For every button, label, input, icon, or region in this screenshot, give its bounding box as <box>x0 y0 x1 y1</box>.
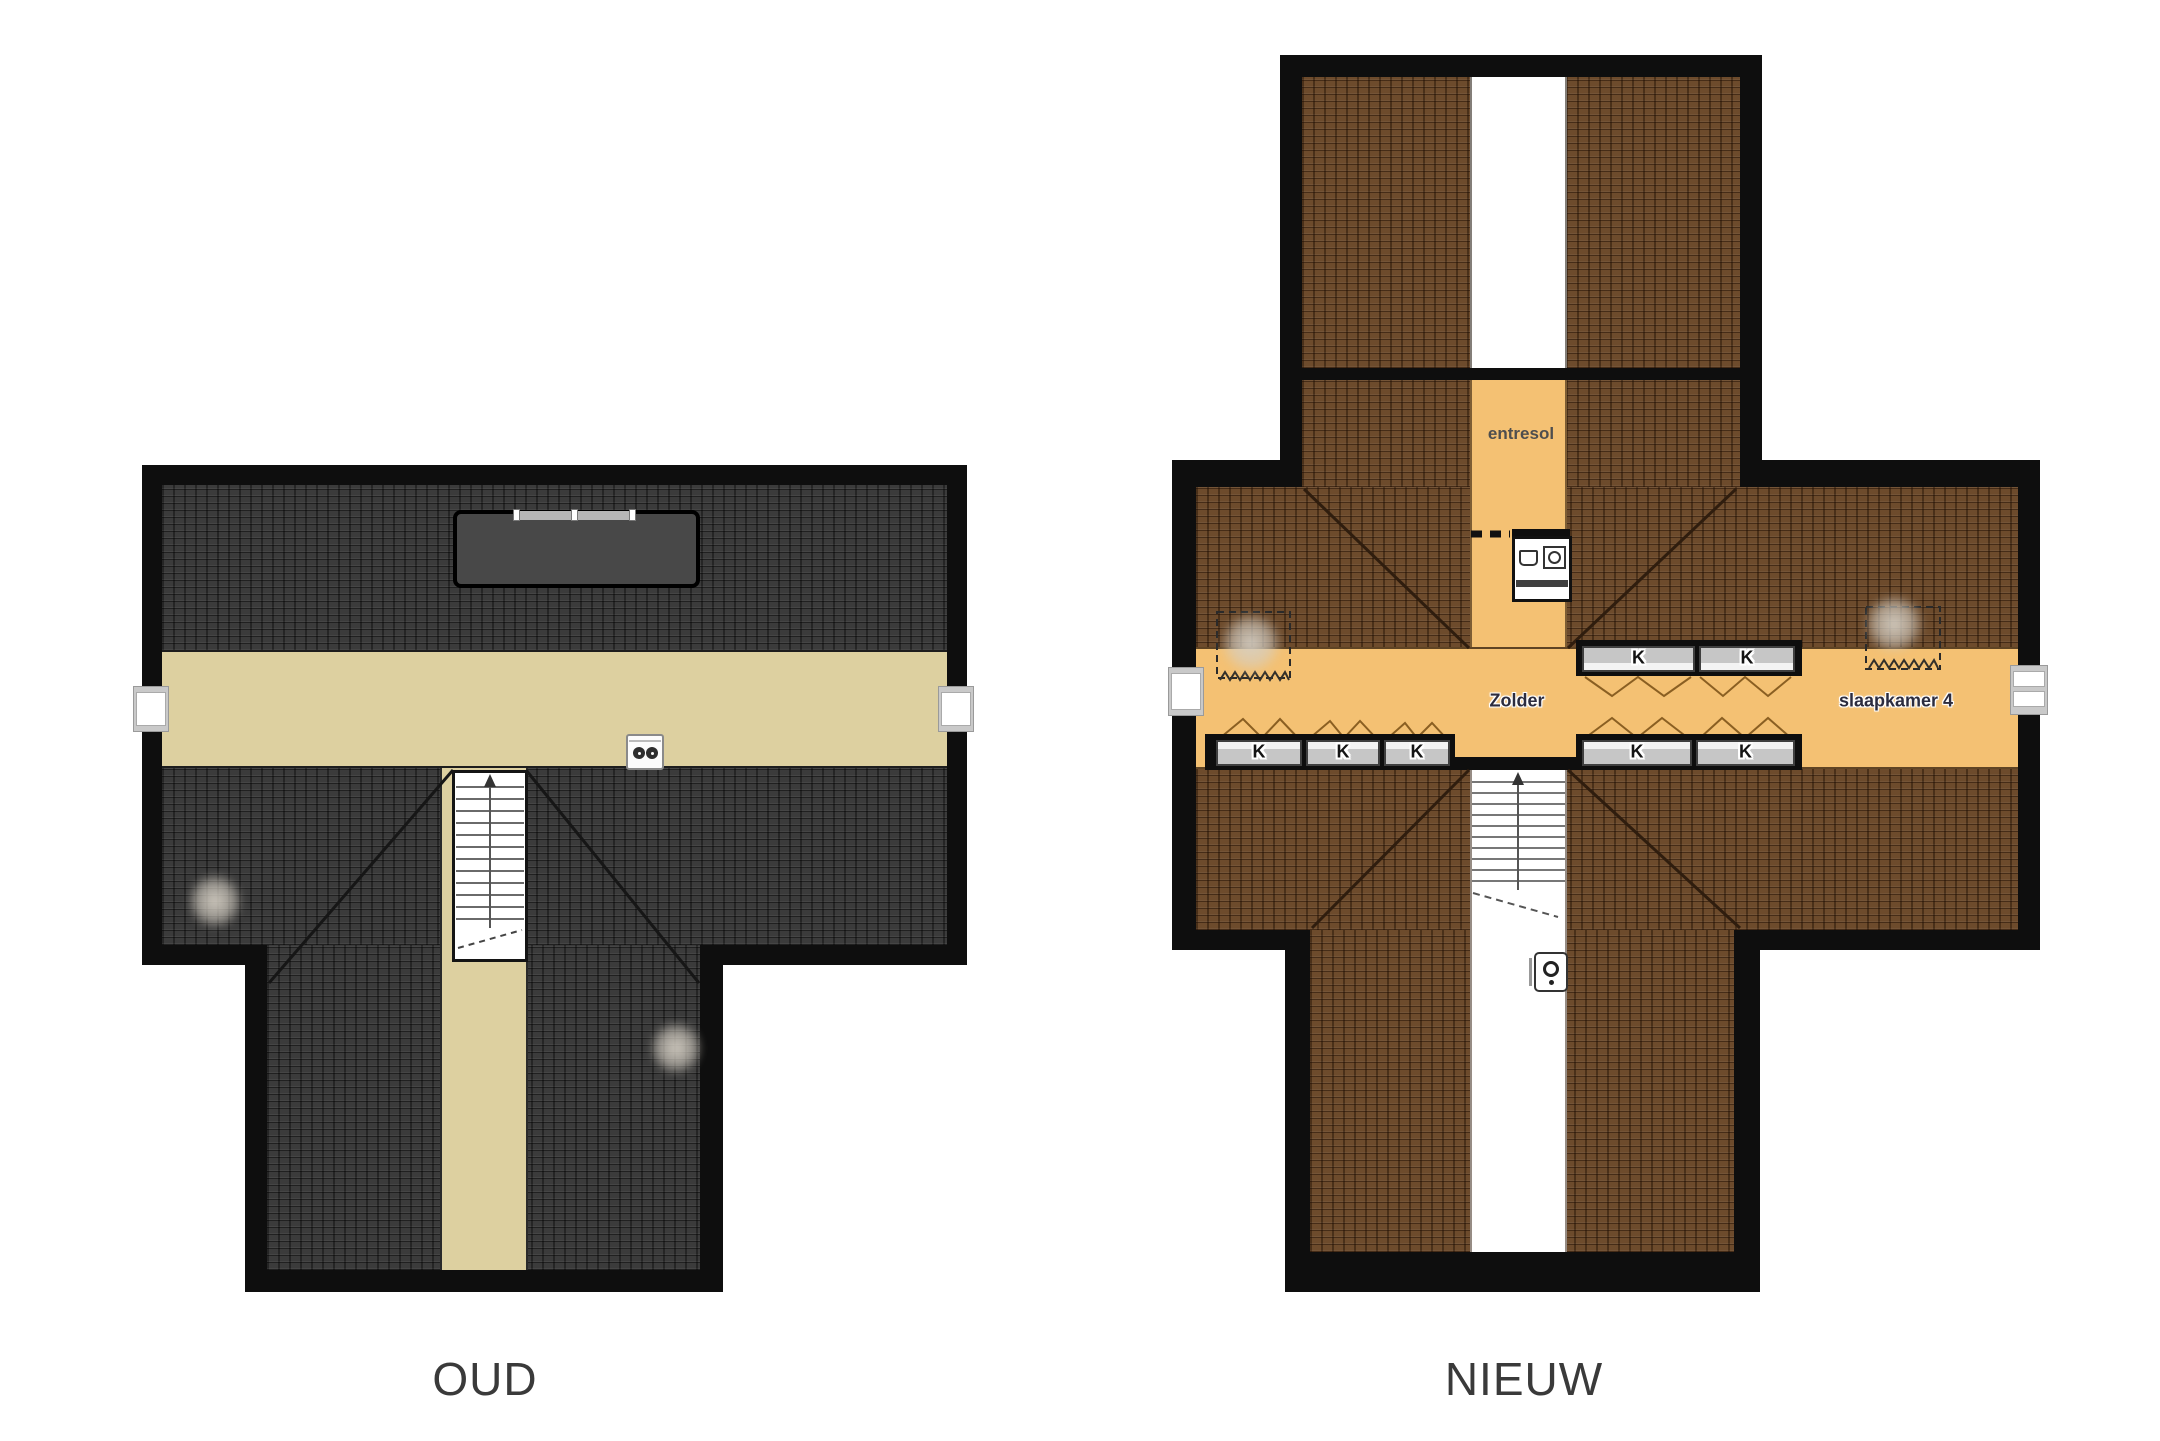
closet-label: K <box>1337 742 1350 763</box>
nieuw-entresol-wall-line <box>1302 368 1740 380</box>
closet-label: K <box>1632 648 1645 669</box>
washer-divider-band <box>1516 580 1568 587</box>
nieuw-right-window-pane-top <box>2013 671 2045 687</box>
vent-unit-dot-right-hole <box>651 752 654 755</box>
vent-unit-top-line <box>629 740 661 742</box>
closet-k-6: K <box>1582 646 1695 672</box>
room-label-entresol: entresol <box>1488 424 1554 444</box>
boiler-dot <box>1549 980 1554 985</box>
nieuw-left-window-pane <box>1171 673 1201 710</box>
room-label-zolder: Zolder <box>1489 691 1544 712</box>
oud-corridor-floor <box>162 650 947 768</box>
closet-label: K <box>1631 742 1644 763</box>
smudge-artifact <box>1864 594 1924 654</box>
nieuw-right-window-pane-bottom <box>2013 691 2045 707</box>
oud-stairs-direction-arrow <box>484 774 496 787</box>
vent-unit-dot-left-hole <box>638 752 641 755</box>
closet-label: K <box>1739 742 1752 763</box>
nieuw-void-strip <box>1470 77 1567 368</box>
closet-label: K <box>1741 648 1754 669</box>
nieuw-entresol-floor <box>1470 380 1567 647</box>
closet-k-5: K <box>1696 740 1795 766</box>
smudge-artifact <box>650 1020 702 1076</box>
nieuw-stairwell-jamb <box>1452 757 1585 770</box>
nieuw-stairs-direction-arrow <box>1512 772 1524 785</box>
caption-nieuw: NIEUW <box>1424 1352 1624 1406</box>
washing-machine-drum <box>1548 551 1561 564</box>
laundry-basket-icon <box>1519 550 1538 566</box>
oud-stairs-centerline <box>489 784 491 928</box>
oud-dormer <box>453 510 700 588</box>
oud-dormer-window-cap-right <box>629 509 636 521</box>
closet-k-7: K <box>1699 646 1795 672</box>
boiler-bracket <box>1529 958 1532 986</box>
smudge-artifact <box>1220 612 1282 674</box>
room-label-slaapkamer-4: slaapkamer 4 <box>1839 691 1953 712</box>
closet-k-3: K <box>1384 740 1450 766</box>
oud-left-window-pane <box>136 692 166 726</box>
closet-label: K <box>1253 742 1266 763</box>
nieuw-stairs-centerline <box>1517 782 1519 890</box>
closet-label: K <box>1411 742 1424 763</box>
closet-k-1: K <box>1216 740 1302 766</box>
oud-right-window-pane <box>941 692 971 726</box>
oud-dormer-window-cap-mid <box>571 509 578 521</box>
boiler-dial <box>1543 961 1559 977</box>
closet-k-2: K <box>1306 740 1380 766</box>
closet-k-4: K <box>1582 740 1692 766</box>
caption-oud: OUD <box>385 1352 585 1406</box>
oud-dormer-window-cap-left <box>513 509 520 521</box>
smudge-artifact <box>188 872 242 930</box>
